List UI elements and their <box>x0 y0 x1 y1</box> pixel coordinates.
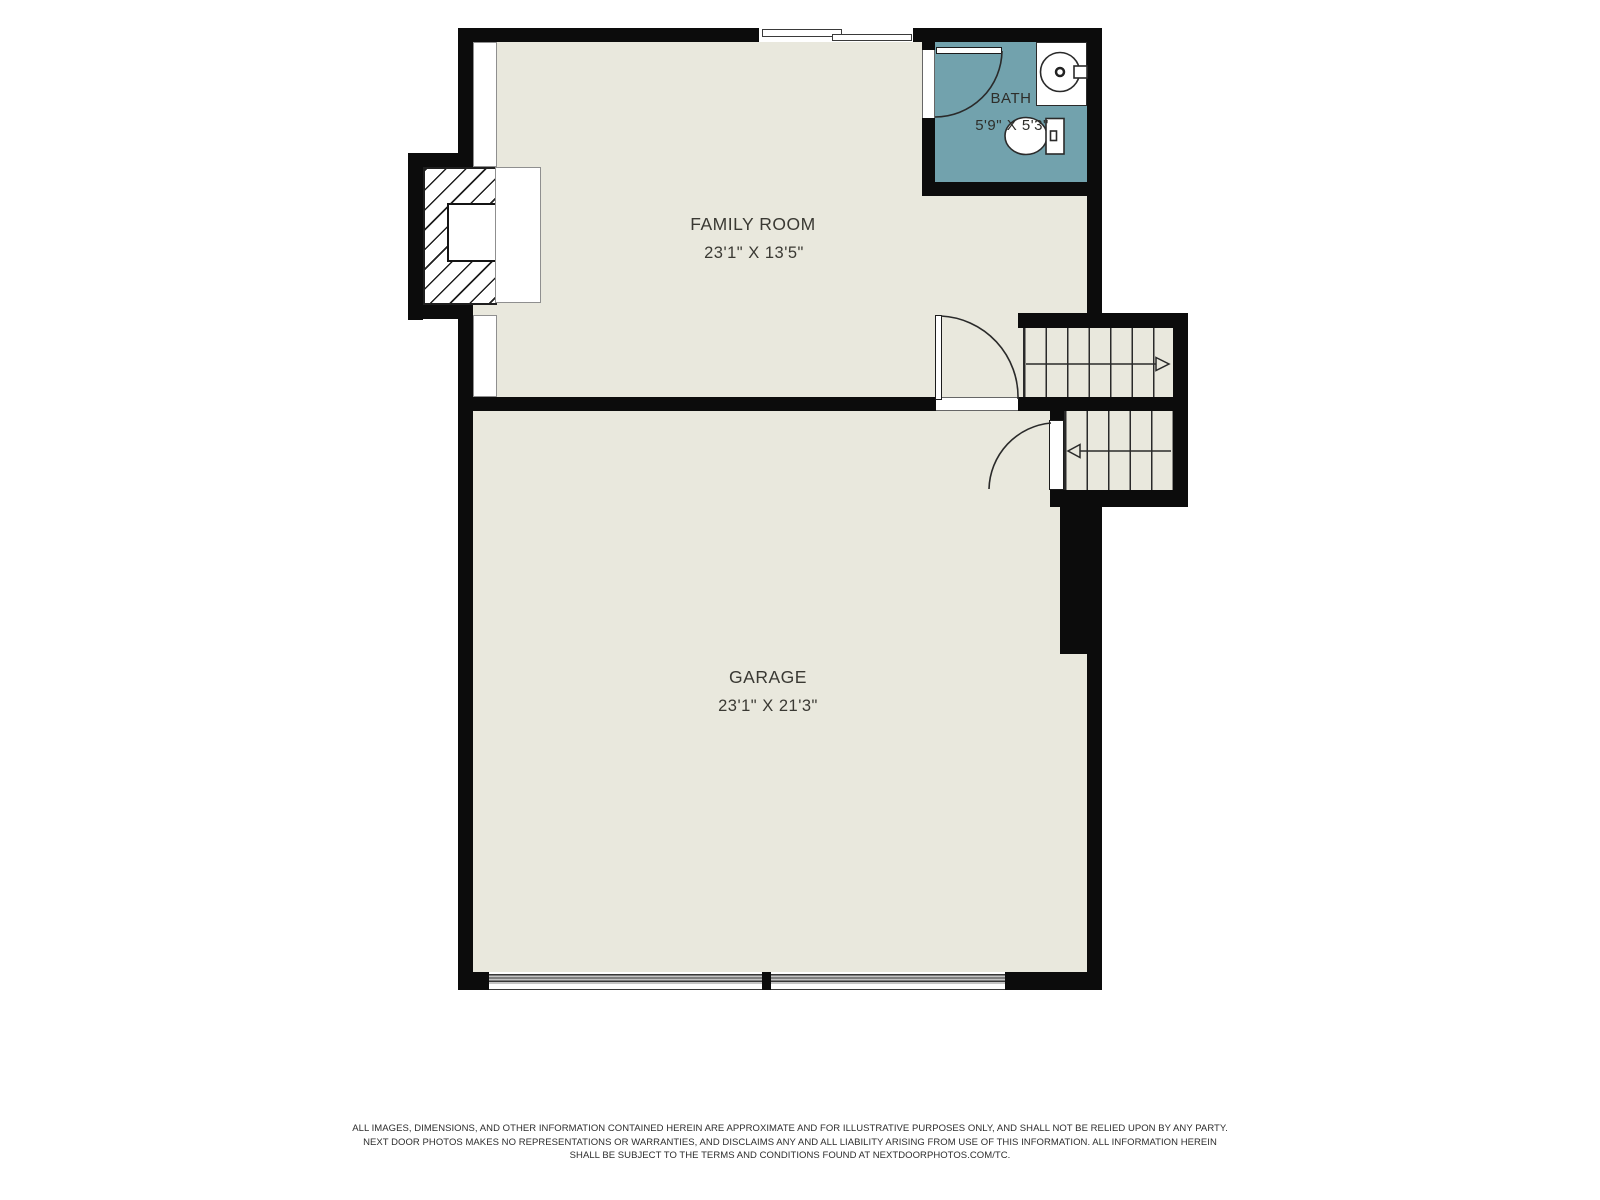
wall-top-left <box>458 28 759 42</box>
stairs-up-treads <box>1023 328 1173 397</box>
stairs-down-treads <box>1064 411 1173 490</box>
wall-right-lower <box>1087 654 1102 990</box>
garage-door-center-post <box>762 972 771 990</box>
garage-door-left-track <box>489 984 762 990</box>
bath-door-opening <box>922 50 935 118</box>
sliding-door-panel-right <box>832 34 912 41</box>
disclaimer-line-3: SHALL BE SUBJECT TO THE TERMS AND CONDIT… <box>150 1149 1430 1163</box>
floor-plan: FAMILY ROOM 23'1" X 13'5" GARAGE 23'1" X… <box>0 0 1600 1200</box>
fireplace-firebox <box>447 203 497 262</box>
family-room-dims: 23'1" X 13'5" <box>704 244 804 263</box>
garage-stair-wall-top <box>1050 411 1064 420</box>
wall-bottom-left-corner <box>458 972 489 990</box>
disclaimer-line-2: NEXT DOOR PHOTOS MAKES NO REPRESENTATION… <box>150 1136 1430 1150</box>
window-lower-left <box>473 315 497 397</box>
wall-right-upper <box>1087 28 1102 328</box>
sink-counter <box>1036 42 1087 106</box>
disclaimer: ALL IMAGES, DIMENSIONS, AND OTHER INFORM… <box>150 1122 1430 1163</box>
window-upper-left <box>473 42 497 167</box>
stairs-top-wall <box>1018 313 1188 328</box>
garage-label: GARAGE <box>729 667 807 688</box>
bath-left-wall-lower <box>922 118 935 182</box>
garage-stair-door-leaf <box>1049 420 1064 490</box>
divider-wall-left <box>458 397 936 411</box>
fireplace-bump-bottom-wall <box>408 305 473 319</box>
disclaimer-line-1: ALL IMAGES, DIMENSIONS, AND OTHER INFORM… <box>150 1122 1430 1136</box>
bath-dims: 5'9" X 5'3" <box>975 117 1049 134</box>
wall-bottom-right <box>1005 972 1102 990</box>
fireplace-bump-left-wall <box>408 153 423 320</box>
fireplace-bump-top-wall <box>408 153 473 167</box>
bath-bottom-wall <box>922 182 1087 196</box>
divider-wall-right <box>1018 397 1188 411</box>
garage-door-right-track <box>771 984 1005 990</box>
wall-top-right <box>913 28 1102 42</box>
family-garage-door-opening <box>936 397 1018 411</box>
sliding-door-panel-left <box>762 29 842 37</box>
wall-right-mid-chunk <box>1060 507 1102 654</box>
bath-left-wall-upper <box>922 42 935 50</box>
garage-door-right <box>771 974 1005 984</box>
family-room-label: FAMILY ROOM <box>690 214 815 235</box>
family-garage-door-leaf <box>935 315 942 400</box>
fireplace-hearth <box>495 167 541 303</box>
wall-left-upper <box>458 28 473 167</box>
bath-label: BATH <box>991 90 1032 107</box>
garage-door-left <box>489 974 762 984</box>
bath-door-leaf <box>936 47 1002 54</box>
stairs-bottom-wall <box>1050 490 1188 507</box>
garage-dims: 23'1" X 21'3" <box>718 697 818 716</box>
